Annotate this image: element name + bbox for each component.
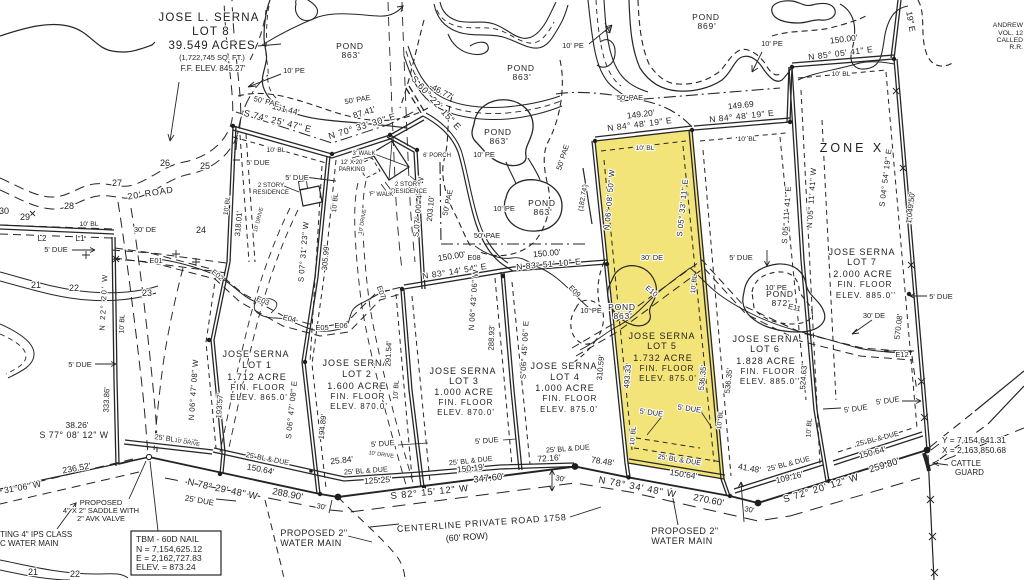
svg-text:S 77° 08' 12" W: S 77° 08' 12" W <box>39 430 108 440</box>
svg-text:ZONE X: ZONE X <box>820 141 885 155</box>
svg-text:CALLED: CALLED <box>997 37 1024 44</box>
svg-text:L1: L1 <box>76 234 85 243</box>
svg-text:ELEV. 865.0': ELEV. 865.0' <box>230 393 288 402</box>
svg-text:ANDREW: ANDREW <box>993 22 1024 29</box>
svg-text:1.000 ACRE: 1.000 ACRE <box>535 383 595 393</box>
svg-text:2 STORY: 2 STORY <box>258 182 284 189</box>
svg-text:PROPOSED 2": PROPOSED 2" <box>280 528 347 538</box>
svg-text:ELEV. = 873.24: ELEV. = 873.24 <box>136 562 196 572</box>
svg-text:50' PAE: 50' PAE <box>617 93 643 102</box>
svg-text:22: 22 <box>70 569 80 579</box>
svg-text:23: 23 <box>142 288 152 298</box>
svg-text:1.828 ACRE: 1.828 ACRE <box>736 356 796 366</box>
svg-text:25: 25 <box>200 161 210 171</box>
svg-text:E06: E06 <box>334 321 347 330</box>
svg-text:L2: L2 <box>38 234 47 243</box>
svg-text:PROPOSED 2": PROPOSED 2" <box>651 526 718 536</box>
svg-text:863': 863' <box>512 72 531 82</box>
svg-text:333.86': 333.86' <box>102 387 112 413</box>
svg-text:39.549 ACRES: 39.549 ACRES <box>169 40 256 52</box>
svg-text:LOT 4: LOT 4 <box>550 372 580 382</box>
svg-text:5' DUE: 5' DUE <box>929 292 953 301</box>
svg-text:10' PE: 10' PE <box>283 66 305 75</box>
svg-text:524.63': 524.63' <box>798 363 809 389</box>
svg-text:LOT 3: LOT 3 <box>449 376 479 386</box>
svg-text:5' DUE: 5' DUE <box>729 253 753 262</box>
svg-text:WATER MAIN: WATER MAIN <box>651 536 713 546</box>
svg-text:FIN. FLOOR: FIN. FLOOR <box>640 364 695 373</box>
svg-text:RESIDENCE: RESIDENCE <box>391 188 427 195</box>
svg-text:FIN. FLOOR: FIN. FLOOR <box>231 383 286 392</box>
svg-text:10' BL: 10' BL <box>831 71 850 78</box>
svg-text:1.732 ACRE: 1.732 ACRE <box>633 353 693 363</box>
svg-text:C WATER MAIN: C WATER MAIN <box>0 539 58 548</box>
svg-text:30: 30 <box>0 206 9 216</box>
svg-text:ELEV. 875.0': ELEV. 875.0' <box>540 405 598 414</box>
svg-text:TBM - 60D NAIL: TBM - 60D NAIL <box>136 534 199 544</box>
svg-text:5' DUE: 5' DUE <box>44 245 68 254</box>
svg-text:ELEV. 870.0': ELEV. 870.0' <box>330 402 388 411</box>
svg-text:LOT 1: LOT 1 <box>242 360 272 370</box>
svg-text:21: 21 <box>31 280 41 290</box>
svg-text:X = 2,163,850.68: X = 2,163,850.68 <box>942 445 1006 455</box>
svg-text:JOSE SERNA: JOSE SERNA <box>628 331 695 341</box>
svg-text:24: 24 <box>196 225 206 235</box>
svg-text:21: 21 <box>28 567 38 577</box>
svg-text:E01: E01 <box>149 256 162 265</box>
svg-text:10' PE: 10' PE <box>562 41 584 50</box>
svg-text:30' DE: 30' DE <box>641 253 663 262</box>
svg-text:JOSE SERNA: JOSE SERNA <box>732 334 799 344</box>
svg-text:LOT 5: LOT 5 <box>647 341 677 351</box>
svg-text:72.16': 72.16' <box>537 452 561 464</box>
svg-text:Y = 7,154,641.31: Y = 7,154,641.31 <box>942 435 1006 445</box>
svg-text:12' X 20': 12' X 20' <box>341 160 364 166</box>
svg-text:10' PE: 10' PE <box>493 204 515 213</box>
svg-text:LOT 8: LOT 8 <box>192 26 230 38</box>
svg-text:869': 869' <box>697 21 716 31</box>
svg-text:(1,722,745 SQ. FT.): (1,722,745 SQ. FT.) <box>179 53 245 62</box>
svg-text:10' PE: 10' PE <box>580 306 602 315</box>
svg-text:FIN. FLOOR: FIN. FLOOR <box>439 398 494 407</box>
svg-text:28: 28 <box>64 201 74 211</box>
svg-text:863': 863' <box>613 311 632 321</box>
svg-text:38.26': 38.26' <box>66 420 89 430</box>
svg-text:ELEV. 885.0'': ELEV. 885.0'' <box>836 291 896 300</box>
svg-text:PARKING: PARKING <box>339 167 366 173</box>
svg-text:125.25': 125.25' <box>364 474 393 486</box>
svg-text:2" AVK VALVE: 2" AVK VALVE <box>77 514 125 523</box>
svg-text:10' BL: 10' BL <box>737 136 756 143</box>
svg-text:JOSE SERNA: JOSE SERNA <box>429 366 496 376</box>
svg-text:6' PORCH: 6' PORCH <box>423 153 451 159</box>
svg-text:2.000 ACRE: 2.000 ACRE <box>833 269 893 279</box>
svg-text:10' PE: 10' PE <box>765 283 787 292</box>
svg-text:ELEV. 875.0': ELEV. 875.0' <box>639 374 697 383</box>
svg-text:10' BL: 10' BL <box>635 145 654 152</box>
svg-text:LOT 2: LOT 2 <box>342 369 372 379</box>
svg-text:10' BL: 10' BL <box>392 380 400 400</box>
svg-text:863': 863' <box>533 207 552 217</box>
svg-text:CATTLE: CATTLE <box>951 459 981 468</box>
svg-text:ELEV. 885.0'': ELEV. 885.0'' <box>740 377 800 386</box>
svg-text:JOSE SERNA: JOSE SERNA <box>530 361 597 371</box>
svg-text:863': 863' <box>341 50 360 60</box>
svg-text:30' DE: 30' DE <box>134 225 156 234</box>
svg-text:F.F. ELEV. 845.27': F.F. ELEV. 845.27' <box>181 64 246 73</box>
svg-text:E08: E08 <box>467 253 480 262</box>
svg-text:VOL. 12: VOL. 12 <box>998 30 1023 37</box>
svg-text:30' DE: 30' DE <box>863 311 885 320</box>
svg-text:27: 27 <box>112 178 122 188</box>
svg-text:193.57': 193.57' <box>214 392 225 418</box>
svg-text:2 STORY: 2 STORY <box>395 181 421 188</box>
svg-text:863': 863' <box>489 136 508 146</box>
svg-text:RESIDENCE: RESIDENCE <box>253 189 289 196</box>
svg-text:3' WALK: 3' WALK <box>353 151 376 157</box>
svg-text:10' BL: 10' BL <box>266 147 285 154</box>
svg-text:10' BL: 10' BL <box>805 418 813 438</box>
svg-text:1.600 ACRE: 1.600 ACRE <box>327 381 387 391</box>
svg-text:JOSE SERNA: JOSE SERNA <box>222 349 289 359</box>
svg-text:E05: E05 <box>315 323 328 332</box>
svg-text:26: 26 <box>160 158 170 168</box>
svg-text:29: 29 <box>20 212 30 222</box>
svg-text:JOSE L. SERNA: JOSE L. SERNA <box>158 12 259 24</box>
svg-text:5' DUE: 5' DUE <box>246 158 270 167</box>
svg-text:LOT 6: LOT 6 <box>750 344 780 354</box>
svg-text:WATER MAIN: WATER MAIN <box>280 538 342 548</box>
svg-text:5' DUE: 5' DUE <box>285 173 309 182</box>
svg-text:FIN. FLOOR: FIN. FLOOR <box>543 394 598 403</box>
svg-text:1.712 ACRE: 1.712 ACRE <box>227 372 287 382</box>
svg-text:LOT 7: LOT 7 <box>847 257 877 267</box>
svg-text:TING 4" IPS CLASS: TING 4" IPS CLASS <box>0 530 72 539</box>
svg-text:FIN. FLOOR: FIN. FLOOR <box>741 367 796 376</box>
svg-text:10' PE: 10' PE <box>473 150 495 159</box>
svg-text:E12: E12 <box>895 350 908 359</box>
svg-text:JOSE SERNA: JOSE SERNA <box>828 247 895 257</box>
svg-text:288.93': 288.93' <box>487 325 497 351</box>
svg-text:22: 22 <box>69 283 79 293</box>
svg-text:5' DUE: 5' DUE <box>68 360 92 369</box>
svg-text:10' BL: 10' BL <box>79 221 98 228</box>
svg-text:291.54': 291.54' <box>383 340 393 366</box>
svg-text:50' PAE: 50' PAE <box>474 231 500 240</box>
svg-text:ELEV. 870.0': ELEV. 870.0' <box>437 408 495 417</box>
svg-text:FIN. FLOOR: FIN. FLOOR <box>838 280 893 289</box>
svg-text:10' PE: 10' PE <box>761 39 783 48</box>
svg-text:FIN. FLOOR: FIN. FLOOR <box>331 392 386 401</box>
svg-text:1.000 ACRE: 1.000 ACRE <box>434 387 494 397</box>
svg-text:R.R.: R.R. <box>1009 44 1023 51</box>
svg-text:JOSE SERNA: JOSE SERNA <box>322 358 389 368</box>
svg-text:'F' WALK: 'F' WALK <box>369 192 393 198</box>
svg-text:GUARD: GUARD <box>955 468 984 477</box>
svg-text:10' BL: 10' BL <box>119 314 127 334</box>
